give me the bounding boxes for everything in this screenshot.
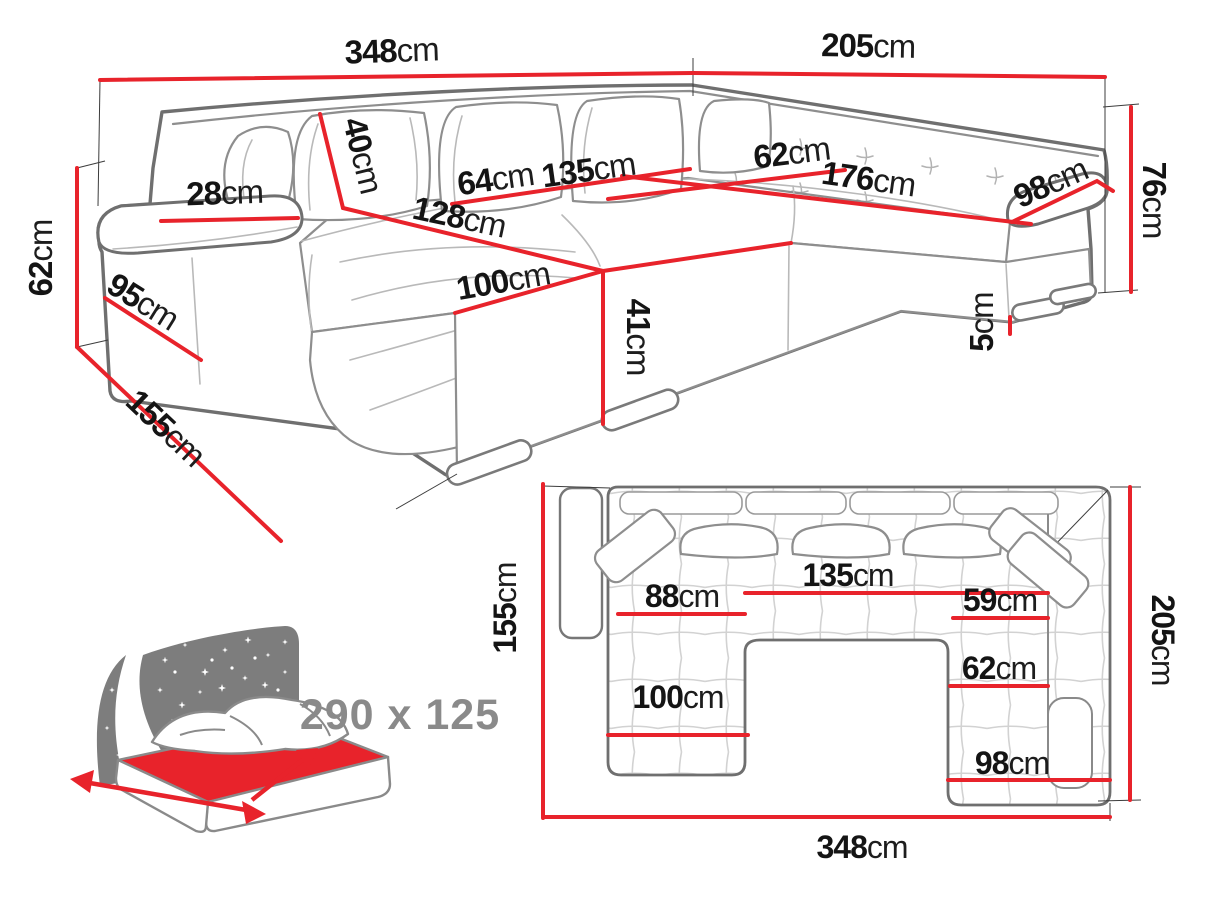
plan-back-cushions <box>620 492 1058 514</box>
sofa-3d-view: 348cm 205cm 76cm 62cm 155cm 95cm 28cm 40… <box>22 26 1173 541</box>
plan-dim-right-seat-depth: 62cm <box>962 650 1036 686</box>
furniture-dimension-diagram: 348cm 205cm 76cm 62cm 155cm 95cm 28cm 40… <box>0 0 1214 911</box>
dim-right-width: 205cm <box>821 26 916 65</box>
dim-armrest-height: 62cm <box>22 220 59 297</box>
plan-dim-total-width: 348cm <box>816 829 907 865</box>
plan-backrest-end-pad <box>1048 698 1092 788</box>
dim-back-width: 348cm <box>344 30 439 70</box>
diagram-canvas: 348cm 205cm 76cm 62cm 155cm 95cm 28cm 40… <box>0 0 1214 911</box>
plan-dim-right-seat-top: 59cm <box>963 582 1037 618</box>
plan-dim-right-chaise-width: 98cm <box>975 745 1049 781</box>
sleeping-area-size: 290 x 125 <box>300 691 500 739</box>
plan-dim-right-depth: 205cm <box>1145 594 1181 685</box>
dim-leg-height: 5cm <box>963 292 1000 351</box>
sofa-bed-icon: 290 x 125 <box>70 626 500 832</box>
sofa-plan-view: 155cm 205cm 348cm 88cm 135cm 59cm 62cm 1… <box>487 484 1181 865</box>
dim-armrest-top-width: 28cm <box>186 173 264 213</box>
dim-seat-height: 41cm <box>620 299 657 376</box>
plan-dim-center-seat: 135cm <box>802 557 893 593</box>
plan-dim-side-depth: 155cm <box>487 562 523 653</box>
plan-dim-left-seat: 88cm <box>645 578 719 614</box>
plan-dim-chaise-width: 100cm <box>632 679 723 715</box>
dim-total-height: 76cm <box>1136 162 1173 239</box>
